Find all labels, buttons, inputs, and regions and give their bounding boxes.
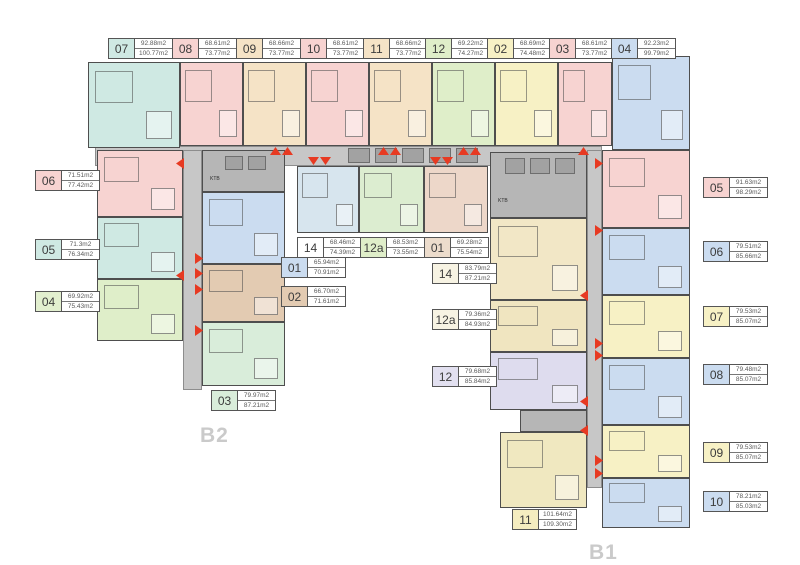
- unit-block-b1-09: [602, 425, 690, 478]
- unit-block-b1-12: [490, 352, 587, 410]
- unit-block-top-04: [612, 56, 690, 150]
- unit-number: 09: [237, 39, 263, 58]
- unit-label-b1-14: 1483.79m287.21m2: [432, 263, 497, 284]
- area-value: 85.07m2: [730, 317, 767, 326]
- unit-block-b2-01: [202, 192, 285, 264]
- unit-label-right-05: 0591.63m298.29m2: [703, 177, 768, 198]
- area-value: 73.55m2: [387, 248, 424, 257]
- unit-block-top-11: [369, 62, 432, 146]
- area-value: 73.77m2: [576, 49, 613, 58]
- area-value: 74.39m2: [324, 248, 361, 257]
- unit-label-b2-03: 0379.97m287.21m2: [211, 390, 276, 411]
- unit-block-mid-14: [297, 166, 359, 233]
- area-value: 68.69m2: [514, 39, 551, 49]
- area-value: 69.22m2: [452, 39, 489, 49]
- area-value: 78.21m2: [730, 492, 767, 502]
- unit-number: 01: [425, 238, 451, 257]
- area-value: 68.66m2: [263, 39, 300, 49]
- unit-label-top-02: 0268.69m274.48m2: [487, 38, 552, 59]
- unit-block-b1-05: [602, 150, 690, 228]
- unit-areas: 65.94m270.91m2: [308, 258, 345, 277]
- unit-label-top-04: 0492.23m299.79m2: [611, 38, 676, 59]
- area-value: 85.66m2: [730, 252, 767, 261]
- area-value: 79.48m2: [730, 365, 767, 375]
- unit-number: 04: [36, 292, 62, 311]
- unit-number: 12: [433, 367, 459, 386]
- unit-areas: 69.22m274.27m2: [452, 39, 489, 58]
- area-value: 79.51m2: [730, 242, 767, 252]
- elevator-shaft: [348, 148, 370, 163]
- unit-number: 05: [36, 240, 62, 259]
- unit-label-b1-11: 11101.64m2109.30m2: [512, 509, 577, 530]
- unit-number: 02: [282, 287, 308, 306]
- unit-areas: 92.23m299.79m2: [638, 39, 675, 58]
- unit-label-right-10: 1078.21m285.03m2: [703, 491, 768, 512]
- unit-number: 07: [704, 307, 730, 326]
- elevator-shaft: [505, 158, 525, 174]
- area-value: 91.63m2: [730, 178, 767, 188]
- area-value: 68.61m2: [327, 39, 364, 49]
- unit-areas: 68.69m274.48m2: [514, 39, 551, 58]
- area-value: 85.03m2: [730, 502, 767, 511]
- unit-label-b1-12: 1279.68m285.84m2: [432, 366, 497, 387]
- unit-block-b2-06: [97, 150, 183, 217]
- unit-block-top-03: [558, 62, 612, 146]
- unit-areas: 68.46m274.39m2: [324, 238, 361, 257]
- area-value: 69.92m2: [62, 292, 99, 302]
- area-value: 109.30m2: [539, 520, 576, 529]
- area-value: 74.27m2: [452, 49, 489, 58]
- area-value: 84.93m2: [459, 320, 496, 329]
- area-value: 77.42m2: [62, 181, 99, 190]
- area-value: 73.77m2: [263, 49, 300, 58]
- unit-label-right-08: 0879.48m285.07m2: [703, 364, 768, 385]
- unit-areas: 79.36m284.93m2: [459, 310, 496, 329]
- unit-areas: 101.64m2109.30m2: [539, 510, 576, 529]
- unit-block-top-12: [432, 62, 495, 146]
- stair-core-b1: [520, 410, 587, 432]
- area-value: 73.77m2: [327, 49, 364, 58]
- area-value: 66.70m2: [308, 287, 345, 297]
- unit-number: 05: [704, 178, 730, 197]
- unit-areas: 68.61m273.77m2: [327, 39, 364, 58]
- unit-number: 12a: [433, 310, 459, 329]
- unit-number: 04: [612, 39, 638, 58]
- elevator-shaft: [402, 148, 424, 163]
- unit-areas: 68.66m273.77m2: [390, 39, 427, 58]
- unit-block-b1-12a: [490, 300, 587, 352]
- unit-number: 14: [298, 238, 324, 257]
- area-value: 85.07m2: [730, 453, 767, 462]
- area-value: 92.23m2: [638, 39, 675, 49]
- unit-areas: 68.53m273.55m2: [387, 238, 424, 257]
- unit-areas: 68.61m273.77m2: [576, 39, 613, 58]
- unit-number: 11: [513, 510, 539, 529]
- area-value: 79.53m2: [730, 307, 767, 317]
- unit-label-top-10: 1068.61m273.77m2: [300, 38, 365, 59]
- unit-areas: 68.61m273.77m2: [199, 39, 236, 58]
- unit-label-left-05: 0571.3m276.34m2: [35, 239, 100, 260]
- area-value: 68.46m2: [324, 238, 361, 248]
- unit-number: 12a: [361, 238, 387, 257]
- unit-areas: 71.3m276.34m2: [62, 240, 99, 259]
- unit-block-mid-01: [424, 166, 488, 233]
- area-value: 79.53m2: [730, 443, 767, 453]
- unit-areas: 79.53m285.07m2: [730, 443, 767, 462]
- area-value: 68.61m2: [199, 39, 236, 49]
- area-value: 68.61m2: [576, 39, 613, 49]
- unit-areas: 92.88m2100.77m2: [135, 39, 172, 58]
- unit-block-b2-04: [97, 279, 183, 341]
- area-value: 92.88m2: [135, 39, 172, 49]
- elevator-core-b2: [202, 150, 285, 192]
- area-value: 100.77m2: [135, 49, 172, 58]
- area-value: 69.28m2: [451, 238, 488, 248]
- unit-block-top-02: [495, 62, 558, 146]
- unit-number: 11: [364, 39, 390, 58]
- elevator-shaft: [248, 156, 266, 170]
- elevator-core-label: KTB: [498, 198, 508, 204]
- area-value: 68.53m2: [387, 238, 424, 248]
- unit-label-b2-01: 0165.94m270.91m2: [281, 257, 346, 278]
- unit-number: 10: [704, 492, 730, 511]
- area-value: 79.68m2: [459, 367, 496, 377]
- unit-number: 07: [109, 39, 135, 58]
- unit-number: 06: [704, 242, 730, 261]
- building-label-b2: B2: [200, 424, 229, 448]
- unit-areas: 79.68m285.84m2: [459, 367, 496, 386]
- building-label-b1: B1: [589, 541, 618, 565]
- unit-block-top-07: [88, 62, 180, 148]
- area-value: 79.97m2: [238, 391, 275, 401]
- area-value: 71.3m2: [62, 240, 99, 250]
- unit-label-top-11: 1168.66m273.77m2: [363, 38, 428, 59]
- unit-label-right-09: 0979.53m285.07m2: [703, 442, 768, 463]
- unit-label-right-07: 0779.53m285.07m2: [703, 306, 768, 327]
- area-value: 83.79m2: [459, 264, 496, 274]
- unit-number: 06: [36, 171, 62, 190]
- unit-label-right-06: 0679.51m285.66m2: [703, 241, 768, 262]
- area-value: 85.84m2: [459, 377, 496, 386]
- unit-block-top-09: [243, 62, 306, 146]
- area-value: 71.61m2: [308, 297, 345, 306]
- unit-label-top-03: 0368.61m273.77m2: [549, 38, 614, 59]
- unit-block-b1-06: [602, 228, 690, 295]
- area-value: 76.34m2: [62, 250, 99, 259]
- unit-block-top-10: [306, 62, 369, 146]
- unit-areas: 71.51m277.42m2: [62, 171, 99, 190]
- area-value: 101.64m2: [539, 510, 576, 520]
- unit-number: 08: [173, 39, 199, 58]
- unit-number: 09: [704, 443, 730, 462]
- area-value: 75.43m2: [62, 302, 99, 311]
- unit-number: 08: [704, 365, 730, 384]
- unit-areas: 69.92m275.43m2: [62, 292, 99, 311]
- unit-block-b1-08: [602, 358, 690, 425]
- unit-areas: 66.70m271.61m2: [308, 287, 345, 306]
- area-value: 98.29m2: [730, 188, 767, 197]
- unit-block-top-08: [180, 62, 243, 146]
- unit-number: 10: [301, 39, 327, 58]
- area-value: 73.77m2: [390, 49, 427, 58]
- area-value: 87.21m2: [459, 274, 496, 283]
- elevator-shaft: [530, 158, 550, 174]
- unit-number: 03: [212, 391, 238, 410]
- elevator-core-label: KTB: [210, 176, 220, 182]
- unit-areas: 69.28m275.54m2: [451, 238, 488, 257]
- area-value: 85.07m2: [730, 375, 767, 384]
- unit-label-top-12: 1269.22m274.27m2: [425, 38, 490, 59]
- unit-block-b1-11: [500, 432, 587, 508]
- unit-block-b1-10: [602, 478, 690, 528]
- unit-areas: 79.51m285.66m2: [730, 242, 767, 261]
- area-value: 73.77m2: [199, 49, 236, 58]
- area-value: 99.79m2: [638, 49, 675, 58]
- unit-label-left-04: 0469.92m275.43m2: [35, 291, 100, 312]
- area-value: 70.91m2: [308, 268, 345, 277]
- unit-block-b2-05: [97, 217, 183, 279]
- unit-number: 12: [426, 39, 452, 58]
- unit-number: 02: [488, 39, 514, 58]
- unit-block-b2-03: [202, 322, 285, 386]
- area-value: 79.36m2: [459, 310, 496, 320]
- corridor-b2: [183, 150, 202, 390]
- area-value: 68.66m2: [390, 39, 427, 49]
- unit-label-left-06: 0671.51m277.42m2: [35, 170, 100, 191]
- unit-label-mid-12a: 12a68.53m273.55m2: [360, 237, 425, 258]
- unit-areas: 78.21m285.03m2: [730, 492, 767, 511]
- unit-number: 14: [433, 264, 459, 283]
- unit-label-b2-02: 0266.70m271.61m2: [281, 286, 346, 307]
- unit-areas: 79.53m285.07m2: [730, 307, 767, 326]
- unit-block-b1-14: [490, 218, 587, 300]
- unit-areas: 79.48m285.07m2: [730, 365, 767, 384]
- area-value: 75.54m2: [451, 248, 488, 257]
- unit-label-mid-14: 1468.46m274.39m2: [297, 237, 362, 258]
- unit-label-top-08: 0868.61m273.77m2: [172, 38, 237, 59]
- floor-plan: KTB KTB 0792.88m2100.77m2 0868.61m273.77…: [0, 0, 800, 565]
- corridor-b1: [587, 150, 602, 488]
- unit-areas: 91.63m298.29m2: [730, 178, 767, 197]
- unit-label-mid-01: 0169.28m275.54m2: [424, 237, 489, 258]
- unit-label-b1-12a: 12a79.36m284.93m2: [432, 309, 497, 330]
- unit-areas: 68.66m273.77m2: [263, 39, 300, 58]
- unit-number: 01: [282, 258, 308, 277]
- area-value: 71.51m2: [62, 171, 99, 181]
- unit-areas: 79.97m287.21m2: [238, 391, 275, 410]
- elevator-shaft: [555, 158, 575, 174]
- unit-label-top-07: 0792.88m2100.77m2: [108, 38, 173, 59]
- area-value: 87.21m2: [238, 401, 275, 410]
- elevator-shaft: [225, 156, 243, 170]
- area-value: 74.48m2: [514, 49, 551, 58]
- unit-number: 03: [550, 39, 576, 58]
- unit-areas: 83.79m287.21m2: [459, 264, 496, 283]
- unit-block-b1-07: [602, 295, 690, 358]
- unit-block-b2-02: [202, 264, 285, 322]
- unit-block-mid-12a: [359, 166, 424, 233]
- area-value: 65.94m2: [308, 258, 345, 268]
- unit-label-top-09: 0968.66m273.77m2: [236, 38, 301, 59]
